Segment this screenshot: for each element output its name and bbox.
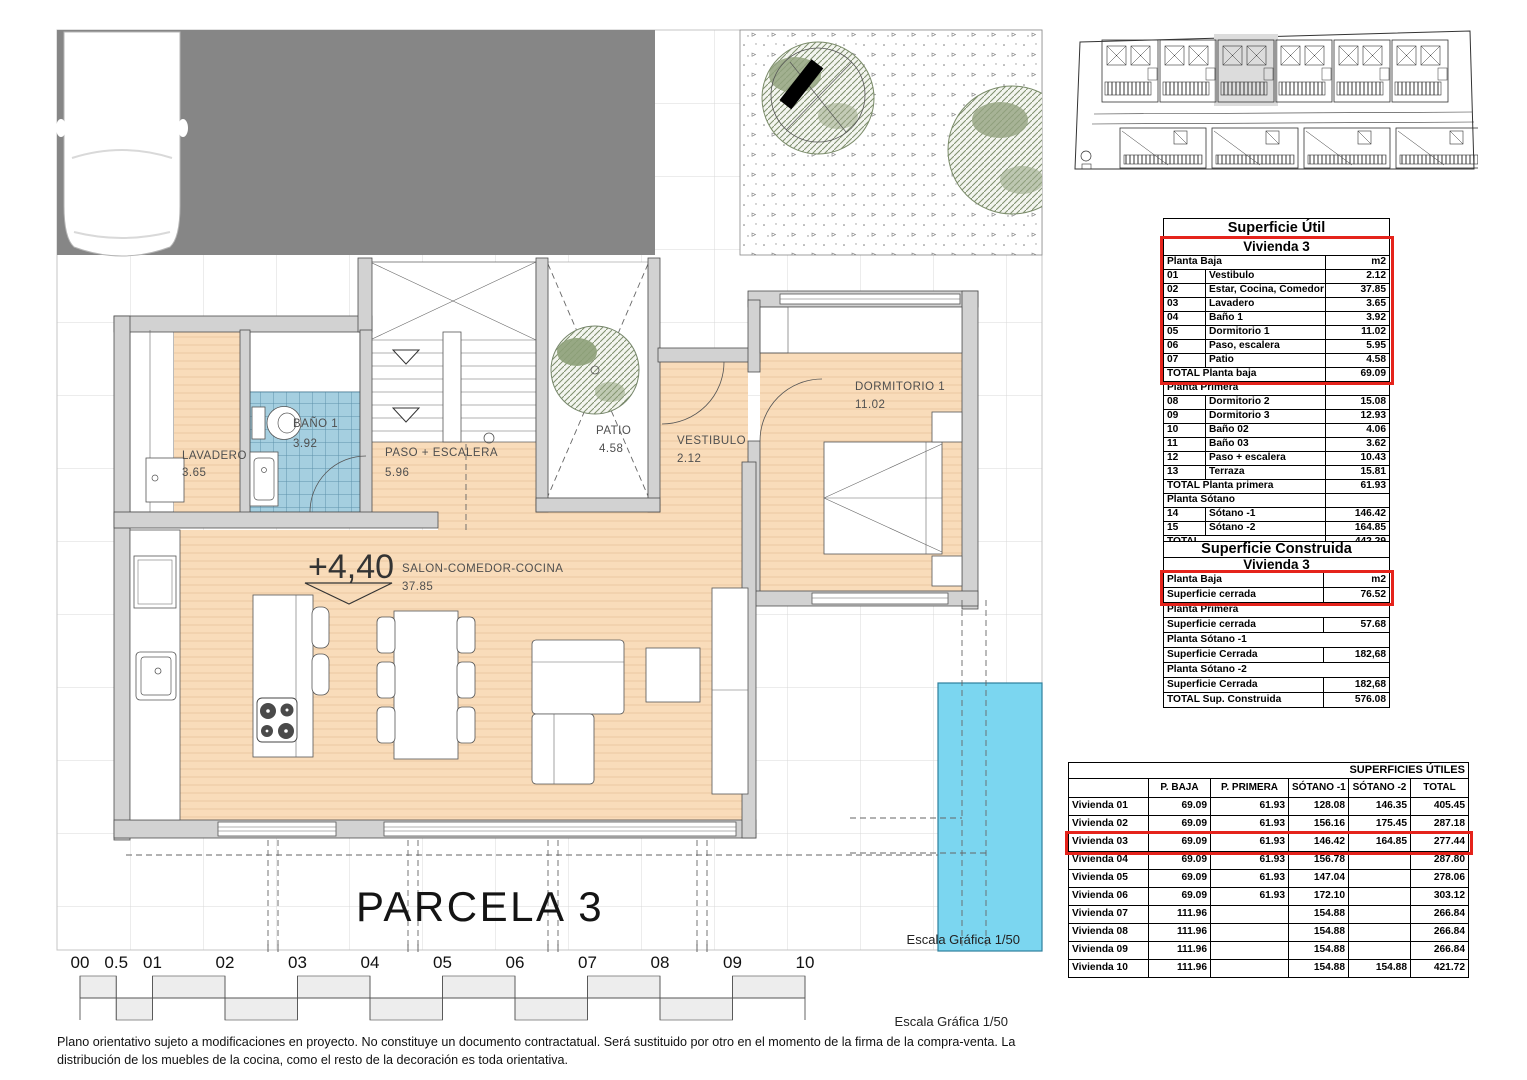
table-cell: 76.52 bbox=[1324, 588, 1390, 603]
table-cell: 182,68 bbox=[1324, 678, 1390, 693]
superficies-utiles-row: Vivienda 0369.0961.93146.42164.85277.44 bbox=[1069, 834, 1469, 852]
superficie-util-row: Planta Bajam2 bbox=[1164, 256, 1390, 270]
scale-label: 02 bbox=[216, 953, 235, 972]
superficie-construida-row: Superficie Cerrada182,68 bbox=[1164, 648, 1390, 663]
table-cell: Vivienda 08 bbox=[1069, 924, 1149, 942]
superficie-construida-row: Superficie cerrada57.68 bbox=[1164, 618, 1390, 633]
table-cell: 156.16 bbox=[1289, 816, 1349, 834]
table-cell: 69.09 bbox=[1326, 368, 1390, 382]
table-cell: Planta Baja bbox=[1164, 256, 1326, 270]
table-cell: Baño 1 bbox=[1206, 312, 1326, 326]
table-cell: 156.78 bbox=[1289, 852, 1349, 870]
superficie-util-row: 08Dormitorio 215.08 bbox=[1164, 396, 1390, 410]
table-cell bbox=[1326, 494, 1390, 508]
superficie-util-row: 09Dormitorio 312.93 bbox=[1164, 410, 1390, 424]
room-area-dormitorio1: 11.02 bbox=[855, 399, 885, 411]
table-cell: Terraza bbox=[1206, 466, 1326, 480]
table-cell: 405.45 bbox=[1411, 798, 1469, 816]
table-cell: Estar, Cocina, Comedor bbox=[1206, 284, 1326, 298]
table-cell: P. BAJA bbox=[1149, 779, 1211, 798]
table-subtitle: Vivienda 3 bbox=[1164, 239, 1390, 256]
scale-label: 05 bbox=[433, 953, 452, 972]
table-cell: 01 bbox=[1164, 270, 1206, 284]
table-cell bbox=[1349, 906, 1411, 924]
dining-table bbox=[377, 611, 475, 759]
superficie-util-row: 02Estar, Cocina, Comedor37.85 bbox=[1164, 284, 1390, 298]
site-marker bbox=[1082, 164, 1091, 169]
table-cell: 147.04 bbox=[1289, 870, 1349, 888]
table-cell bbox=[1211, 906, 1289, 924]
table-cell: TOTAL bbox=[1411, 779, 1469, 798]
superficies-utiles-header-row: P. BAJAP. PRIMERASÓTANO -1SÓTANO -2TOTAL bbox=[1069, 779, 1469, 798]
escala-label-bottom: Escala Gráfica 1/50 bbox=[895, 1014, 1008, 1029]
superficie-util-row: 11Baño 033.62 bbox=[1164, 438, 1390, 452]
table-cell: 69.09 bbox=[1149, 852, 1211, 870]
escala-label-plan: Escala Gráfica 1/50 bbox=[907, 932, 1020, 947]
site-marker bbox=[1081, 151, 1091, 161]
table-cell: Vestibulo bbox=[1206, 270, 1326, 284]
superficies-utiles-row: Vivienda 0269.0961.93156.16175.45287.18 bbox=[1069, 816, 1469, 834]
scale-bar: 000.501020304050607080910 bbox=[71, 944, 815, 1020]
scale-label: 09 bbox=[723, 953, 742, 972]
table-cell: 61.93 bbox=[1326, 480, 1390, 494]
table-cell: 576.08 bbox=[1324, 693, 1390, 708]
table-cell: Baño 03 bbox=[1206, 438, 1326, 452]
scale-label: 0.5 bbox=[104, 953, 128, 972]
table-cell: 61.93 bbox=[1211, 870, 1289, 888]
table-cell: 182,68 bbox=[1324, 648, 1390, 663]
superficies-utiles-row: Vivienda 07111.96154.88266.84 bbox=[1069, 906, 1469, 924]
table-cell: Dormitorio 2 bbox=[1206, 396, 1326, 410]
table-cell: 61.93 bbox=[1211, 798, 1289, 816]
table-cell: 175.45 bbox=[1349, 816, 1411, 834]
bathroom-sink-icon bbox=[250, 452, 278, 506]
table-cell: 69.09 bbox=[1149, 888, 1211, 906]
superficie-util-row: Planta Sótano bbox=[1164, 494, 1390, 508]
superficie-construida-row: Planta Primera bbox=[1164, 603, 1390, 618]
superficie-construida-title-row: Superficie Construida bbox=[1164, 542, 1390, 558]
superficie-construida-table: Superficie Construida Vivienda 3 Planta … bbox=[1163, 541, 1390, 708]
superficies-utiles-row: Vivienda 0169.0961.93128.08146.35405.45 bbox=[1069, 798, 1469, 816]
superficies-utiles-row: Vivienda 08111.96154.88266.84 bbox=[1069, 924, 1469, 942]
superficie-util-row: 15Sótano -2164.85 bbox=[1164, 522, 1390, 536]
table-cell: 146.42 bbox=[1289, 834, 1349, 852]
table-subtitle: Vivienda 3 bbox=[1164, 558, 1390, 573]
table-cell: Vivienda 09 bbox=[1069, 942, 1149, 960]
superficie-construida-row: Superficie Cerrada182,68 bbox=[1164, 678, 1390, 693]
coffee-table bbox=[646, 648, 700, 702]
superficie-util-row: 04Baño 13.92 bbox=[1164, 312, 1390, 326]
table-cell: 4.06 bbox=[1326, 424, 1390, 438]
table-cell: 12 bbox=[1164, 452, 1206, 466]
superficie-util-row: TOTAL Planta primera61.93 bbox=[1164, 480, 1390, 494]
table-cell: 03 bbox=[1164, 298, 1206, 312]
table-cell: 11 bbox=[1164, 438, 1206, 452]
superficie-util-row: 13Terraza15.81 bbox=[1164, 466, 1390, 480]
tv-bench bbox=[712, 588, 748, 794]
table-cell: 154.88 bbox=[1349, 960, 1411, 978]
table-cell: Planta Primera bbox=[1164, 603, 1390, 618]
wardrobe bbox=[760, 307, 962, 353]
scale-label: 08 bbox=[651, 953, 670, 972]
superficie-util-row: 03Lavadero3.65 bbox=[1164, 298, 1390, 312]
table-cell: 10.43 bbox=[1326, 452, 1390, 466]
room-area-lavadero: 3.65 bbox=[182, 467, 206, 479]
table-cell: 154.88 bbox=[1289, 942, 1349, 960]
table-cell: 69.09 bbox=[1149, 870, 1211, 888]
superficie-util-row: 14Sótano -1146.42 bbox=[1164, 508, 1390, 522]
table-cell: 111.96 bbox=[1149, 906, 1211, 924]
table-cell: 111.96 bbox=[1149, 942, 1211, 960]
table-cell: Vivienda 10 bbox=[1069, 960, 1149, 978]
scale-label: 00 bbox=[71, 953, 90, 972]
table-cell: 11.02 bbox=[1326, 326, 1390, 340]
table-cell bbox=[1326, 382, 1390, 396]
table-cell bbox=[1349, 924, 1411, 942]
superficie-construida-row: TOTAL Sup. Construida576.08 bbox=[1164, 693, 1390, 708]
plan-sheet: LAVADERO 3.65 BAÑO 1 3.92 PASO + ESCALER… bbox=[0, 0, 1527, 1080]
superficies-utiles-row: Vivienda 09111.96154.88266.84 bbox=[1069, 942, 1469, 960]
table-cell: 154.88 bbox=[1289, 906, 1349, 924]
table-cell: Planta Baja bbox=[1164, 573, 1324, 588]
table-cell: Paso + escalera bbox=[1206, 452, 1326, 466]
table-cell: 04 bbox=[1164, 312, 1206, 326]
table-cell: Sótano -2 bbox=[1206, 522, 1326, 536]
disclaimer-line2: distribución de los muebles de la cocina… bbox=[57, 1053, 568, 1067]
disclaimer-line1: Plano orientativo sujeto a modificacione… bbox=[57, 1035, 1015, 1049]
table-title: Superficie Construida bbox=[1164, 542, 1390, 558]
table-cell: 2.12 bbox=[1326, 270, 1390, 284]
table-cell: 266.84 bbox=[1411, 924, 1469, 942]
table-cell: 277.44 bbox=[1411, 834, 1469, 852]
superficie-util-row: 06Paso, escalera5.95 bbox=[1164, 340, 1390, 354]
superficies-utiles-row: Vivienda 0669.0961.93172.10303.12 bbox=[1069, 888, 1469, 906]
table-cell bbox=[1211, 942, 1289, 960]
table-cell: 287.80 bbox=[1411, 852, 1469, 870]
table-cell: 4.58 bbox=[1326, 354, 1390, 368]
table-cell: 69.09 bbox=[1149, 798, 1211, 816]
table-cell: Dormitorio 1 bbox=[1206, 326, 1326, 340]
table-cell: 146.42 bbox=[1326, 508, 1390, 522]
elevation-value: +4,40 bbox=[308, 548, 394, 586]
room-area-paso: 5.96 bbox=[385, 467, 409, 479]
table-cell: Planta Primera bbox=[1164, 382, 1326, 396]
table-cell: Planta Sótano -2 bbox=[1164, 663, 1390, 678]
table-title: Superficie Útil bbox=[1164, 219, 1390, 239]
table-cell: Planta Sótano bbox=[1164, 494, 1326, 508]
table-cell: TOTAL Sup. Construida bbox=[1164, 693, 1324, 708]
scale-label: 07 bbox=[578, 953, 597, 972]
table-cell: TOTAL Planta baja bbox=[1164, 368, 1326, 382]
superficie-construida-row: Planta Sótano -1 bbox=[1164, 633, 1390, 648]
scale-label: 01 bbox=[143, 953, 162, 972]
table-cell: 164.85 bbox=[1326, 522, 1390, 536]
superficie-util-row: 12Paso + escalera10.43 bbox=[1164, 452, 1390, 466]
superficies-utiles-row: Vivienda 0469.0961.93156.78287.80 bbox=[1069, 852, 1469, 870]
table-cell: 111.96 bbox=[1149, 924, 1211, 942]
superficie-util-row: 10Baño 024.06 bbox=[1164, 424, 1390, 438]
table-cell: 111.96 bbox=[1149, 960, 1211, 978]
table-cell: Dormitorio 3 bbox=[1206, 410, 1326, 424]
table-cell: 266.84 bbox=[1411, 942, 1469, 960]
scale-label: 06 bbox=[506, 953, 525, 972]
table-cell: 164.85 bbox=[1349, 834, 1411, 852]
table-cell: 154.88 bbox=[1289, 924, 1349, 942]
tree-icon bbox=[762, 42, 874, 154]
table-cell: 07 bbox=[1164, 354, 1206, 368]
hob-icon bbox=[257, 698, 297, 742]
table-cell bbox=[1211, 960, 1289, 978]
table-cell: 05 bbox=[1164, 326, 1206, 340]
room-area-patio: 4.58 bbox=[599, 443, 623, 455]
table-cell: 61.93 bbox=[1211, 834, 1289, 852]
room-label-dormitorio1: DORMITORIO 1 bbox=[855, 381, 945, 393]
garden bbox=[740, 30, 1060, 255]
table-cell: Superficie cerrada bbox=[1164, 618, 1324, 633]
table-cell: 287.18 bbox=[1411, 816, 1469, 834]
table-cell: 57.68 bbox=[1324, 618, 1390, 633]
table-cell bbox=[1349, 870, 1411, 888]
table-cell: Vivienda 01 bbox=[1069, 798, 1149, 816]
superficie-construida-row: Planta Sótano -2 bbox=[1164, 663, 1390, 678]
table-cell: 69.09 bbox=[1149, 834, 1211, 852]
table-cell: 15 bbox=[1164, 522, 1206, 536]
room-area-bano1: 3.92 bbox=[293, 438, 317, 450]
pool bbox=[938, 683, 1042, 951]
superficies-utiles-title-row: SUPERFICIES ÚTILES bbox=[1069, 763, 1469, 779]
table-cell: 09 bbox=[1164, 410, 1206, 424]
table-cell: 61.93 bbox=[1211, 888, 1289, 906]
table-cell: 266.84 bbox=[1411, 906, 1469, 924]
table-cell: 69.09 bbox=[1149, 816, 1211, 834]
scale-label: 03 bbox=[288, 953, 307, 972]
scale-label: 10 bbox=[796, 953, 815, 972]
table-cell: Patio bbox=[1206, 354, 1326, 368]
table-cell: TOTAL Planta primera bbox=[1164, 480, 1326, 494]
room-label-vestibulo: VESTIBULO bbox=[677, 435, 746, 447]
parcela-title: PARCELA 3 bbox=[356, 883, 604, 930]
superficie-util-row: TOTAL Planta baja69.09 bbox=[1164, 368, 1390, 382]
table-cell: 3.65 bbox=[1326, 298, 1390, 312]
table-cell: Baño 02 bbox=[1206, 424, 1326, 438]
room-label-paso: PASO + ESCALERA bbox=[385, 447, 498, 459]
table-title: SUPERFICIES ÚTILES bbox=[1069, 763, 1469, 779]
table-cell: 61.93 bbox=[1211, 852, 1289, 870]
table-cell: Vivienda 07 bbox=[1069, 906, 1149, 924]
table-cell: 172.10 bbox=[1289, 888, 1349, 906]
car-icon bbox=[56, 32, 188, 256]
table-cell: P. PRIMERA bbox=[1211, 779, 1289, 798]
table-cell: Lavadero bbox=[1206, 298, 1326, 312]
table-cell bbox=[1211, 924, 1289, 942]
table-cell: m2 bbox=[1326, 256, 1390, 270]
room-label-patio: PATIO bbox=[596, 425, 631, 437]
table-cell: m2 bbox=[1324, 573, 1390, 588]
table-cell: 61.93 bbox=[1211, 816, 1289, 834]
room-area-salon: 37.85 bbox=[402, 581, 433, 593]
table-cell: 128.08 bbox=[1289, 798, 1349, 816]
stairs bbox=[370, 262, 536, 443]
table-cell: Paso, escalera bbox=[1206, 340, 1326, 354]
site-plan bbox=[1072, 26, 1478, 174]
superficie-util-table: Superficie Útil Vivienda 3 Planta Bajam2… bbox=[1163, 218, 1390, 550]
table-cell: Vivienda 06 bbox=[1069, 888, 1149, 906]
table-cell: SÓTANO -1 bbox=[1289, 779, 1349, 798]
table-cell: 278.06 bbox=[1411, 870, 1469, 888]
table-cell: 421.72 bbox=[1411, 960, 1469, 978]
kitchen-counter bbox=[130, 530, 180, 820]
superficie-construida-row: Superficie cerrada76.52 bbox=[1164, 588, 1390, 603]
table-cell: Vivienda 02 bbox=[1069, 816, 1149, 834]
superficie-util-row: Planta Primera bbox=[1164, 382, 1390, 396]
superficie-util-subtitle-row: Vivienda 3 bbox=[1164, 239, 1390, 256]
table-cell bbox=[1349, 888, 1411, 906]
table-cell: Vivienda 04 bbox=[1069, 852, 1149, 870]
table-cell: 146.35 bbox=[1349, 798, 1411, 816]
table-cell bbox=[1349, 942, 1411, 960]
superficie-construida-subtitle-row: Vivienda 3 bbox=[1164, 558, 1390, 573]
table-cell: 13 bbox=[1164, 466, 1206, 480]
table-cell: 15.08 bbox=[1326, 396, 1390, 410]
table-cell: 15.81 bbox=[1326, 466, 1390, 480]
table-cell: Sótano -1 bbox=[1206, 508, 1326, 522]
superficies-utiles-row: Vivienda 0569.0961.93147.04278.06 bbox=[1069, 870, 1469, 888]
table-cell: 14 bbox=[1164, 508, 1206, 522]
superficie-util-title-row: Superficie Útil bbox=[1164, 219, 1390, 239]
table-cell: 3.62 bbox=[1326, 438, 1390, 452]
table-cell: Superficie Cerrada bbox=[1164, 678, 1324, 693]
table-cell bbox=[1349, 852, 1411, 870]
table-cell: SÓTANO -2 bbox=[1349, 779, 1411, 798]
superficie-util-row: 07Patio4.58 bbox=[1164, 354, 1390, 368]
table-cell: Superficie Cerrada bbox=[1164, 648, 1324, 663]
room-label-lavadero: LAVADERO bbox=[182, 450, 247, 462]
superficies-utiles-table: SUPERFICIES ÚTILES P. BAJAP. PRIMERASÓTA… bbox=[1068, 762, 1469, 978]
table-cell: Vivienda 05 bbox=[1069, 870, 1149, 888]
table-cell: Vivienda 03 bbox=[1069, 834, 1149, 852]
room-label-salon: SALON-COMEDOR-COCINA bbox=[402, 563, 563, 575]
scale-label: 04 bbox=[361, 953, 380, 972]
table-cell: Superficie cerrada bbox=[1164, 588, 1324, 603]
table-cell: 303.12 bbox=[1411, 888, 1469, 906]
table-cell: 06 bbox=[1164, 340, 1206, 354]
tree-icon bbox=[551, 326, 639, 414]
table-cell: 154.88 bbox=[1289, 960, 1349, 978]
table-cell: 10 bbox=[1164, 424, 1206, 438]
room-label-bano1: BAÑO 1 bbox=[293, 417, 338, 430]
superficie-construida-row: Planta Bajam2 bbox=[1164, 573, 1390, 588]
table-cell: 08 bbox=[1164, 396, 1206, 410]
table-cell: 5.95 bbox=[1326, 340, 1390, 354]
table-cell: 3.92 bbox=[1326, 312, 1390, 326]
floor-plan: LAVADERO 3.65 BAÑO 1 3.92 PASO + ESCALER… bbox=[0, 0, 1060, 1080]
superficie-util-row: 05Dormitorio 111.02 bbox=[1164, 326, 1390, 340]
table-cell bbox=[1069, 779, 1149, 798]
superficie-util-row: 01Vestibulo2.12 bbox=[1164, 270, 1390, 284]
room-area-vestibulo: 2.12 bbox=[677, 453, 701, 465]
table-cell: 12.93 bbox=[1326, 410, 1390, 424]
superficies-utiles-row: Vivienda 10111.96154.88154.88421.72 bbox=[1069, 960, 1469, 978]
table-cell: Planta Sótano -1 bbox=[1164, 633, 1390, 648]
table-cell: 02 bbox=[1164, 284, 1206, 298]
table-cell: 37.85 bbox=[1326, 284, 1390, 298]
